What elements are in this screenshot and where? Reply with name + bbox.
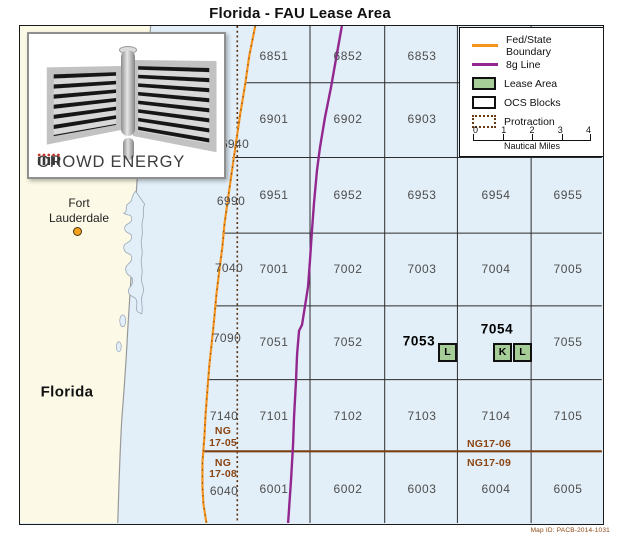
ocs-block-label: 7001 xyxy=(259,262,288,276)
legend-item-lease-area: Lease Area xyxy=(472,74,597,93)
logo-box: CROWD ENERGY xyxy=(27,32,226,179)
ocs-block-label: 6001 xyxy=(259,482,288,496)
ocs-block-label: 7103 xyxy=(407,409,436,423)
legend-item-ocs-blocks: OCS Blocks xyxy=(472,93,597,112)
lease-aliquot-l: L xyxy=(513,343,532,362)
ocs-block-label: 6952 xyxy=(333,188,362,202)
ocs-block-label: 6851 xyxy=(259,49,288,63)
west-block-label: 6990 xyxy=(217,194,245,208)
ocs-block-label: 6901 xyxy=(259,112,288,126)
map-id: Map ID: PACB-2014-1031 xyxy=(531,527,610,534)
lease-aliquot-k: K xyxy=(493,343,512,362)
ocs-block-label: 6902 xyxy=(333,112,362,126)
city-label-fort-lauderdale: Lauderdale xyxy=(49,211,109,225)
legend: Fed/State Boundary 8g Line Lease Area OC… xyxy=(459,27,604,157)
turbine-left-panel xyxy=(47,66,121,145)
lease-aliquot-l: L xyxy=(438,343,457,362)
ocs-block-label: 6002 xyxy=(333,482,362,496)
lease-block-7053-label: 7053 xyxy=(403,334,435,349)
waterway-pond xyxy=(120,315,126,327)
ocs-block-label: 7105 xyxy=(553,409,582,423)
legend-item-8g-line: 8g Line xyxy=(472,55,597,74)
orange-line-swatch xyxy=(472,44,498,47)
scale-bar-line xyxy=(473,135,591,141)
legend-item-fed-state-boundary: Fed/State Boundary xyxy=(472,36,597,55)
purple-line-swatch xyxy=(472,63,498,66)
city-label-fort-lauderdale: Fort xyxy=(68,196,89,210)
ocs-block-label: 7102 xyxy=(333,409,362,423)
lease-area-swatch xyxy=(472,77,496,90)
protraction-label-ng17-08: 17-08 xyxy=(209,468,237,480)
state-label-florida: Florida xyxy=(41,384,94,401)
scale-bar: 0 1 2 3 4 Nautical Miles xyxy=(473,125,591,152)
map-canvas: 6851 6852 6853 6901 6902 6903 6951 6952 … xyxy=(19,25,604,525)
ocs-block-label: 7003 xyxy=(407,262,436,276)
ocs-block-label: 7104 xyxy=(481,409,510,423)
protraction-label-ng17-06: NG17-06 xyxy=(467,438,511,450)
waterway-pond xyxy=(116,342,121,352)
ocs-block-label: 6955 xyxy=(553,188,582,202)
ocs-block-label: 6004 xyxy=(481,482,510,496)
ocs-block-label: 6903 xyxy=(407,112,436,126)
protraction-label-ng17-05: 17-05 xyxy=(209,437,237,449)
ocs-block-label: 6954 xyxy=(481,188,510,202)
ocs-block-label: 6003 xyxy=(407,482,436,496)
crowd-icon xyxy=(37,153,61,166)
turbine-right-panel xyxy=(133,60,216,152)
page: Florida - FAU Lease Area xyxy=(0,0,620,555)
ocs-block-label: 7052 xyxy=(333,335,362,349)
west-block-label: 7090 xyxy=(213,331,241,345)
ocs-block-label: 6853 xyxy=(407,49,436,63)
company-branding: CROWD ENERGY xyxy=(37,153,185,172)
scale-unit-label: Nautical Miles xyxy=(473,141,591,151)
ocs-block-label: 6005 xyxy=(553,482,582,496)
protraction-label-ng17-05: NG xyxy=(215,425,231,437)
ocs-blocks-swatch xyxy=(472,96,496,109)
west-block-label: 7140 xyxy=(210,409,238,423)
map-title: Florida - FAU Lease Area xyxy=(0,5,600,22)
west-block-label: 7040 xyxy=(215,261,243,275)
lease-block-7054-label: 7054 xyxy=(481,322,513,337)
ocs-block-label: 7005 xyxy=(553,262,582,276)
west-block-label: 6040 xyxy=(210,484,238,498)
ocs-block-label: 6852 xyxy=(333,49,362,63)
ocs-block-label: 7055 xyxy=(553,335,582,349)
ocs-block-label: 6953 xyxy=(407,188,436,202)
city-marker-dot xyxy=(73,227,82,236)
ocs-block-label: 7002 xyxy=(333,262,362,276)
protraction-label-ng17-09: NG17-09 xyxy=(467,457,511,469)
ocs-block-label: 6951 xyxy=(259,188,288,202)
ocs-block-label: 7051 xyxy=(259,335,288,349)
ocs-block-label: 7101 xyxy=(259,409,288,423)
turbine-shaft xyxy=(121,50,135,136)
ocs-block-label: 7004 xyxy=(481,262,510,276)
